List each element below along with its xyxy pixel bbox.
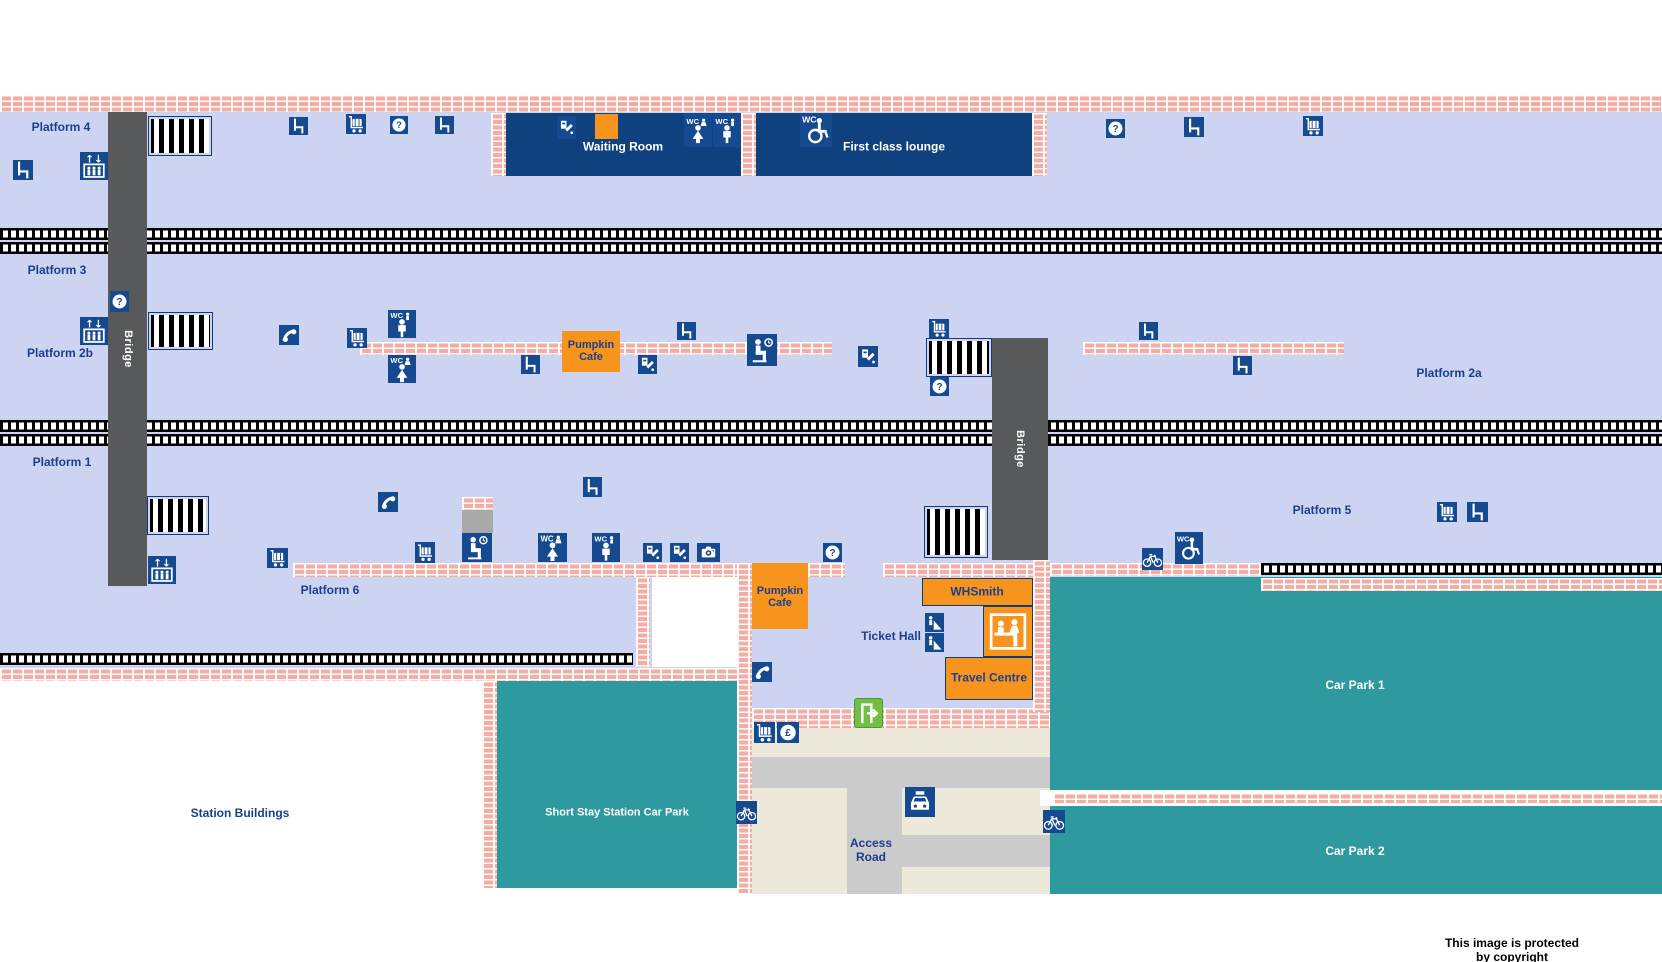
wc-acc-icon: [800, 113, 832, 147]
brick-wall: [1032, 113, 1047, 176]
travel-centre-label: Travel Centre: [951, 671, 1027, 684]
map-label: Platform 3: [28, 264, 87, 278]
seat-icon: [1467, 502, 1488, 522]
infodesk-icon: [986, 610, 1030, 653]
brick-wall: [636, 577, 650, 667]
brick-wall: [462, 497, 493, 510]
railway-track: [0, 242, 1662, 254]
map-label: Car Park 1: [1325, 679, 1384, 693]
trolley-icon: [267, 548, 288, 568]
seat-icon: [1184, 117, 1204, 137]
lift-icon: [148, 556, 176, 584]
trolley-icon: [415, 542, 435, 563]
brick-wall: [1033, 560, 1050, 712]
waiting-room-label: Waiting Room: [583, 140, 663, 153]
seat-icon: [521, 355, 540, 374]
seat-icon: [435, 116, 454, 134]
lift-icon: [80, 152, 108, 180]
map-label: Platform 2a: [1416, 367, 1481, 381]
cafe-icon: [595, 114, 618, 139]
pedestrian-crossing: [924, 506, 988, 558]
map-label: Platform 4: [32, 121, 91, 135]
seat-icon: [13, 160, 33, 180]
pedestrian-crossing: [926, 338, 992, 377]
tvm-icon: [638, 355, 657, 374]
brick-wall: [741, 113, 756, 176]
railway-track: [1261, 563, 1662, 575]
trolley-icon: [929, 319, 949, 338]
map-label: Platform 6: [301, 584, 360, 598]
waiting-icon: [747, 334, 777, 366]
access-road-spur-zone: [902, 835, 1050, 867]
railway-track: [0, 434, 1662, 446]
pumpkin-cafe-concourse-label: Pumpkin Cafe: [757, 585, 803, 609]
railway-track: [0, 420, 1662, 432]
map-label: Platform 2b: [27, 347, 93, 361]
railway-track: [0, 653, 633, 665]
seat-icon: [677, 322, 696, 340]
wc-acc-icon: [1175, 532, 1203, 564]
footbridge: Bridge: [108, 112, 147, 586]
map-label: Access Road: [850, 837, 892, 865]
seat-icon: [1139, 322, 1158, 340]
brick-wall: [0, 668, 737, 681]
wc-f-icon: [388, 355, 416, 383]
brick-wall: [737, 563, 752, 894]
brick-wall: [1261, 578, 1662, 591]
short-stay-car-park-zone: [497, 680, 737, 888]
lift-icon: [80, 317, 108, 345]
pumpkin-cafe-platform-label: Pumpkin Cafe: [568, 339, 614, 363]
bridge-label: Bridge: [1014, 430, 1026, 468]
phone-icon: [378, 492, 398, 512]
pound-icon: [777, 722, 799, 743]
twindow-icon: [925, 633, 944, 652]
help-icon: [1106, 119, 1125, 138]
camera-icon: [697, 543, 720, 562]
map-label: Station Buildings: [191, 807, 290, 821]
trolley-icon: [754, 722, 775, 743]
trolley-icon: [346, 114, 366, 134]
bike-icon: [736, 801, 757, 824]
phone-icon: [752, 662, 772, 682]
brick-wall: [1053, 793, 1662, 803]
brick-wall: [808, 563, 845, 577]
wc-m-icon: [713, 113, 741, 147]
map-label: Short Stay Station Car Park: [545, 807, 689, 820]
access-road-horizontal-zone: [752, 757, 1050, 788]
brick-wall: [1083, 342, 1344, 355]
tvm-icon: [858, 346, 878, 367]
wc-f-icon: [538, 533, 567, 562]
help-icon: [390, 116, 408, 134]
seat-icon: [1233, 356, 1252, 375]
pedestrian-crossing: [148, 312, 213, 350]
brick-wall: [491, 113, 506, 176]
phone-icon: [279, 325, 299, 345]
taxi-icon: [905, 787, 935, 817]
bike-icon: [1043, 810, 1065, 833]
wc-m-icon: [592, 533, 620, 562]
station-map: BridgeBridgeWaiting RoomFirst class loun…: [0, 0, 1662, 962]
seat-icon: [583, 477, 602, 497]
railway-track: [0, 228, 1662, 240]
map-label: This image is protected by copyright: [1437, 937, 1587, 962]
footbridge: Bridge: [992, 338, 1048, 560]
help-icon: [110, 291, 129, 312]
pedestrian-crossing: [147, 496, 209, 535]
trolley-icon: [1303, 116, 1323, 136]
brick-wall: [883, 563, 1050, 577]
seat-icon: [289, 117, 308, 135]
bike-icon: [1142, 548, 1163, 570]
whsmith-label: WHSmith: [950, 585, 1003, 598]
trolley-icon: [1437, 502, 1457, 522]
shelter-zone: [462, 510, 493, 533]
brick-wall: [293, 563, 753, 577]
wc-m-icon: [388, 310, 416, 338]
map-label: Car Park 2: [1325, 845, 1384, 859]
pedestrian-crossing: [148, 116, 212, 156]
brick-wall: [0, 95, 1662, 112]
exit-icon: [854, 698, 883, 728]
map-label: Platform 5: [1293, 504, 1352, 518]
tvm-icon: [557, 116, 576, 139]
help-icon: [930, 377, 949, 396]
brick-wall: [482, 670, 497, 888]
map-label: Ticket Hall: [861, 630, 921, 644]
twindow-icon: [925, 613, 944, 632]
help-icon: [823, 543, 842, 562]
tvm-icon: [643, 543, 662, 562]
waiting-icon: [462, 533, 492, 562]
bridge-label: Bridge: [122, 330, 134, 368]
white-room-zone: [652, 577, 737, 667]
wc-f-icon: [684, 113, 712, 147]
trolley-icon: [347, 328, 367, 348]
map-label: Platform 1: [33, 456, 92, 470]
tvm-icon: [670, 543, 689, 562]
first-class-lounge-label: First class lounge: [843, 140, 945, 153]
